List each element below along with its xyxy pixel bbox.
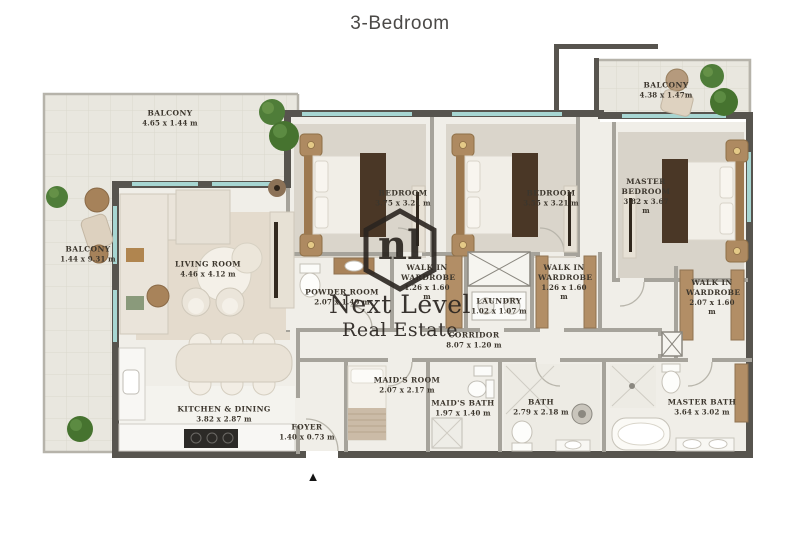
label-walk-in-wardrobe-2: WALK IN WARDROBE 1.26 x 1.60 m	[538, 263, 590, 301]
label-bedroom-2: BEDROOM 3.55 x 3.21 m	[523, 189, 579, 208]
label-maids-room: MAID'S ROOM 2.07 x 2.17 m	[374, 376, 440, 395]
watermark-line1: Next Level	[320, 290, 480, 319]
label-bedroom-1: BEDROOM 3.75 x 3.21 m	[375, 189, 431, 208]
watermark-line2: Real Estate	[320, 319, 480, 341]
entrance-marker-icon: ▲	[307, 469, 320, 484]
logo-monogram: nl	[320, 226, 480, 266]
label-foyer: FOYER 1.40 x 0.73 m	[279, 423, 335, 442]
label-living-room: LIVING ROOM 4.46 x 4.12 m	[175, 260, 241, 279]
label-balcony-top-left: BALCONY 4.65 x 1.44 m	[142, 109, 198, 128]
entrance-door-gap	[306, 451, 338, 458]
label-bath: BATH 2.79 x 2.18 m	[513, 398, 569, 417]
label-master-bath: MASTER BATH 3.64 x 3.02 m	[668, 398, 737, 417]
label-balcony-top-right: BALCONY 4.38 x 1.47m	[640, 81, 693, 100]
label-maids-bath: MAID'S BATH 1.97 x 1.40 m	[431, 399, 494, 418]
label-master-bedroom: MASTER BEDROOM 3.82 x 3.67 m	[620, 177, 672, 215]
floorplan-page: 3-Bedroom	[0, 0, 800, 539]
watermark: nl Next Level Real Estate	[320, 208, 480, 341]
label-walk-in-wardrobe-master: WALK IN WARDROBE 2.07 x 1.60 m	[686, 278, 738, 316]
furniture-kitchen-dining	[119, 333, 295, 451]
label-kitchen-dining: KITCHEN & DINING 3.82 x 2.87 m	[177, 405, 270, 424]
label-balcony-left: BALCONY 1.44 x 9.31 m	[60, 245, 116, 264]
